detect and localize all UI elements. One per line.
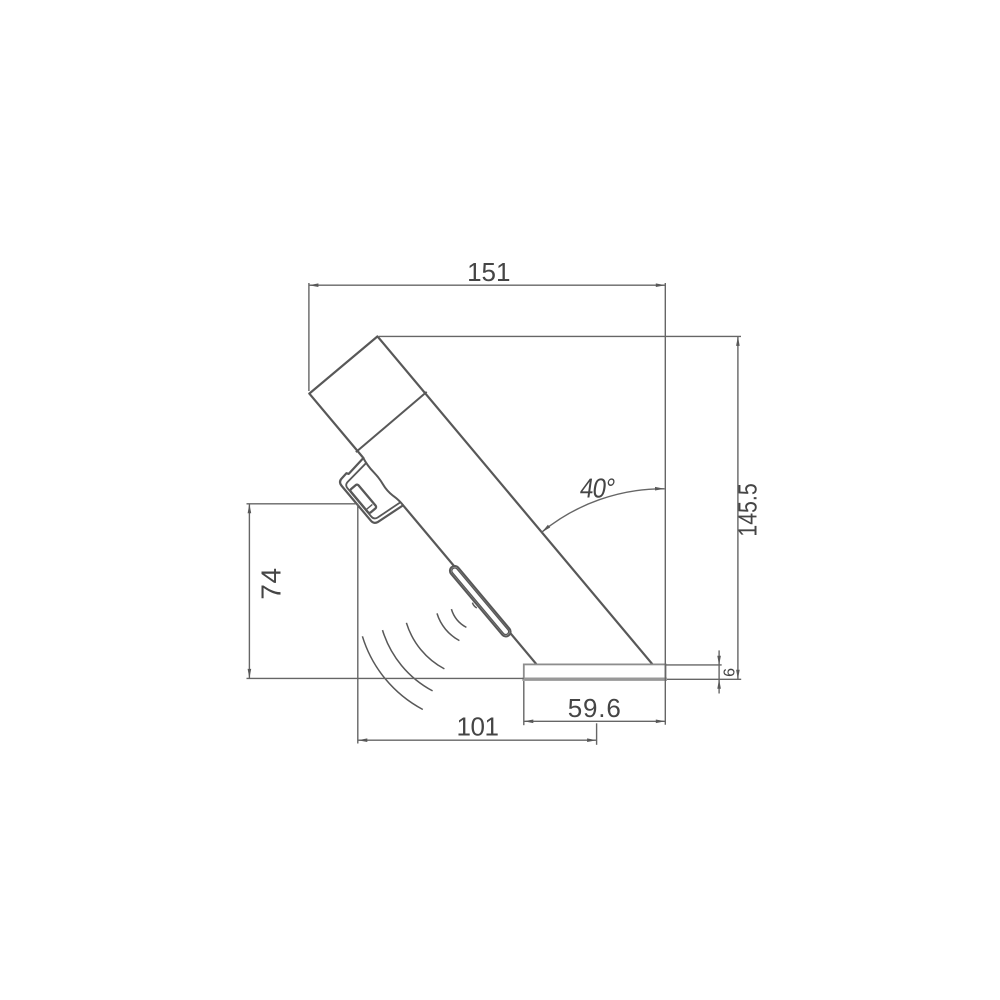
svg-text:151: 151 <box>467 257 510 287</box>
svg-text:40°: 40° <box>578 472 616 504</box>
svg-text:74: 74 <box>256 567 287 599</box>
svg-text:59.6: 59.6 <box>568 693 622 723</box>
svg-text:101: 101 <box>457 711 499 741</box>
svg-text:145.5: 145.5 <box>734 483 764 536</box>
svg-text:6: 6 <box>722 668 739 677</box>
